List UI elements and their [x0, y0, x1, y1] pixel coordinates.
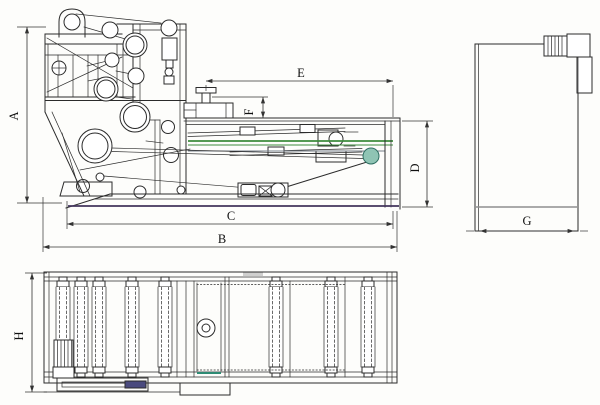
dim-label-a: A [7, 111, 21, 120]
engineering-drawing-page: A [0, 0, 600, 405]
roller [162, 121, 175, 134]
gray-mark [243, 273, 263, 278]
plan-roller [324, 277, 338, 377]
motor-bracket [577, 57, 592, 93]
dim-label-h: H [12, 331, 26, 340]
roller [177, 186, 185, 194]
side-elevation-view: A [7, 9, 433, 252]
dimension-a: A [7, 27, 62, 203]
dimension-d: D [402, 121, 433, 207]
plan-roller [92, 277, 106, 377]
dimension-e: E [206, 66, 393, 117]
plan-roller [361, 277, 375, 377]
dim-label-d: D [408, 163, 422, 172]
base-step [180, 383, 230, 395]
tail-roller-teal [363, 148, 379, 164]
port-circle [197, 319, 215, 337]
dim-label-c: C [227, 209, 235, 223]
drive-gearbox [177, 183, 288, 197]
belt-tensioner [162, 38, 177, 60]
plan-view: H [12, 272, 397, 395]
end-view: G [466, 34, 592, 231]
roller [102, 22, 118, 38]
drive-drum [78, 129, 112, 163]
roller [128, 68, 144, 84]
dim-label-f: F [242, 108, 256, 115]
end-view-motor [544, 34, 592, 231]
dim-label-e: E [297, 66, 305, 80]
motor-finned-body [544, 36, 567, 56]
dim-label-g: G [522, 214, 531, 228]
roller [329, 132, 343, 146]
plan-roller [74, 277, 88, 377]
roller [105, 53, 119, 67]
roller [96, 173, 104, 181]
roller [134, 186, 146, 198]
end-view-outline [475, 44, 578, 231]
motor-gearbox [53, 367, 74, 378]
base-frame [66, 194, 399, 208]
press-roller [120, 102, 150, 132]
motor-finned-body [54, 340, 73, 367]
roller [94, 77, 118, 101]
bottom-protrusions [44, 378, 230, 395]
roller [161, 20, 177, 36]
plan-roller [269, 277, 283, 377]
dim-label-b: B [218, 232, 226, 246]
plan-roller [125, 277, 139, 377]
feed-port-stem [202, 93, 210, 103]
motor-gearbox [567, 34, 590, 57]
plan-motor [53, 340, 74, 378]
roller [123, 33, 147, 57]
dimension-h: H [12, 273, 47, 392]
plan-roller [158, 277, 172, 377]
lug-hole [64, 14, 80, 30]
drive-pulley [271, 183, 285, 197]
dimension-g: G [466, 214, 588, 231]
blue-bar [125, 381, 146, 388]
